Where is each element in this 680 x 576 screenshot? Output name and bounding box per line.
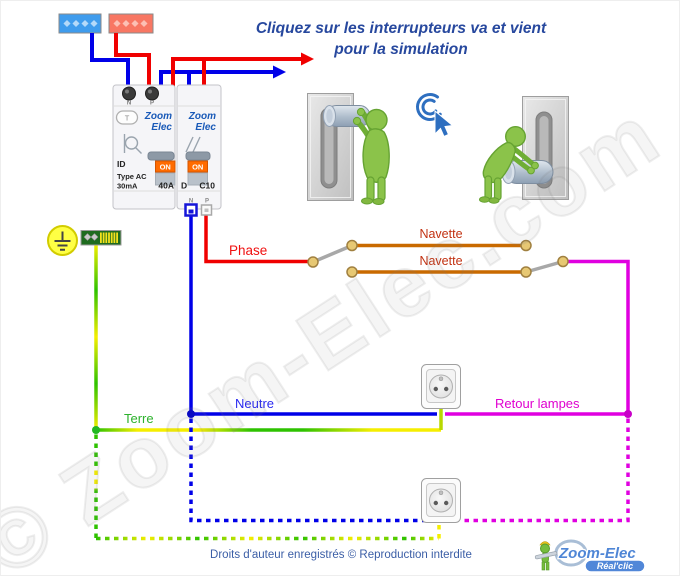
svg-text:ON: ON — [192, 163, 203, 172]
right-switch-lever — [526, 262, 563, 273]
figure-left — [353, 108, 389, 204]
terminal-screw-p — [146, 87, 159, 100]
earth-terminal-strip — [81, 231, 121, 246]
click-cursor-icon — [413, 90, 453, 137]
phase-arrow — [301, 53, 314, 66]
simulation-canvas: N P T Zoom Elec ON ID Type AC 30mA 40A Z… — [0, 0, 680, 576]
neutral-supply-wire — [92, 33, 128, 86]
left-switch-contact[interactable] — [308, 241, 357, 278]
terminal-screw-n — [123, 87, 136, 100]
brand-text: Zoom — [144, 111, 172, 122]
earth-pin — [439, 377, 443, 381]
neutral-arrow — [273, 66, 286, 79]
test-button[interactable]: T — [117, 111, 138, 124]
brand-text: Zoom — [188, 111, 216, 122]
neutre-junction-dot — [187, 410, 195, 418]
diff-id-label: ID — [117, 159, 126, 169]
right-common-terminal — [558, 257, 568, 267]
switch-slot — [186, 152, 210, 160]
retour-junction-dot — [624, 410, 632, 418]
retour-lampes-wire-dotted — [463, 419, 628, 521]
diff-terminal-p-label: P — [150, 101, 154, 107]
neutral-supply-block — [59, 14, 101, 33]
logo-figure — [535, 542, 557, 571]
left-common-terminal — [308, 257, 318, 267]
lamp-socket-2 — [422, 479, 461, 523]
breaker-curve-label: D — [181, 181, 187, 191]
circuit-breaker: Zoom Elec ON D C10 N P — [177, 85, 221, 216]
socket-hole — [434, 501, 438, 505]
logo-tagline: Réal'clic — [597, 561, 633, 571]
differential-breaker: N P T Zoom Elec ON ID Type AC 30mA 40A — [113, 85, 175, 209]
lamp-socket-1 — [422, 365, 461, 409]
right-navette-terminal-bottom — [521, 267, 531, 277]
diff-terminal-n-label: N — [127, 101, 131, 107]
switch-slot — [148, 152, 174, 160]
phase-supply-block — [109, 14, 153, 33]
brand-text: Elec — [151, 122, 172, 133]
right-navette-terminal-top — [521, 241, 531, 251]
diff-sensitivity-label: 30mA — [117, 182, 138, 191]
right-va-et-vient-switch[interactable] — [480, 97, 569, 204]
left-switch-lever — [313, 246, 352, 263]
out-terminal-n — [186, 205, 197, 216]
out-terminal-p-label: P — [205, 199, 209, 205]
breaker-rating-label: C10 — [199, 181, 215, 191]
neutral-bus-wire — [161, 66, 286, 87]
terre-junction-dot — [92, 426, 100, 434]
left-navette-terminal-bottom — [347, 267, 357, 277]
left-va-et-vient-switch[interactable] — [308, 94, 390, 205]
socket-hole — [434, 387, 438, 391]
brand-text: Elec — [195, 122, 216, 133]
diff-type-label: Type AC — [117, 172, 147, 181]
out-terminal-p — [202, 205, 212, 215]
earth-symbol — [48, 226, 77, 255]
socket-hole — [444, 501, 448, 505]
retour-lampes-wire — [445, 262, 628, 415]
phase-wire — [206, 214, 309, 262]
phase-bus-wire — [173, 53, 314, 87]
neutre-wire-dotted — [191, 419, 434, 521]
svg-text:T: T — [125, 114, 130, 123]
zoom-elec-logo: Zoom-Elec Réal'clic — [535, 541, 645, 572]
socket-hole — [444, 387, 448, 391]
right-switch-contact[interactable] — [521, 241, 568, 278]
svg-text:ON: ON — [160, 163, 171, 172]
diff-rating-label: 40A — [158, 181, 174, 191]
left-navette-terminal-top — [347, 241, 357, 251]
earth-pin — [439, 491, 443, 495]
